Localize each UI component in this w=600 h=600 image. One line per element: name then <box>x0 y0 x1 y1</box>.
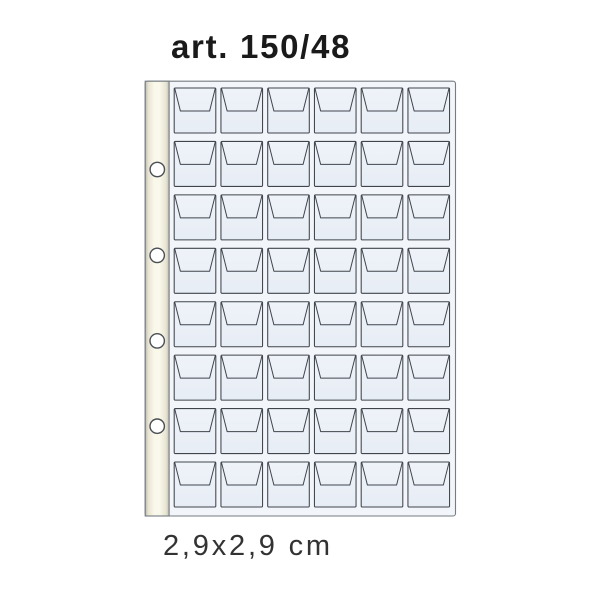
svg-text:art. 150/48: art. 150/48 <box>171 28 351 65</box>
svg-text:2,9x2,9 cm: 2,9x2,9 cm <box>163 530 333 562</box>
